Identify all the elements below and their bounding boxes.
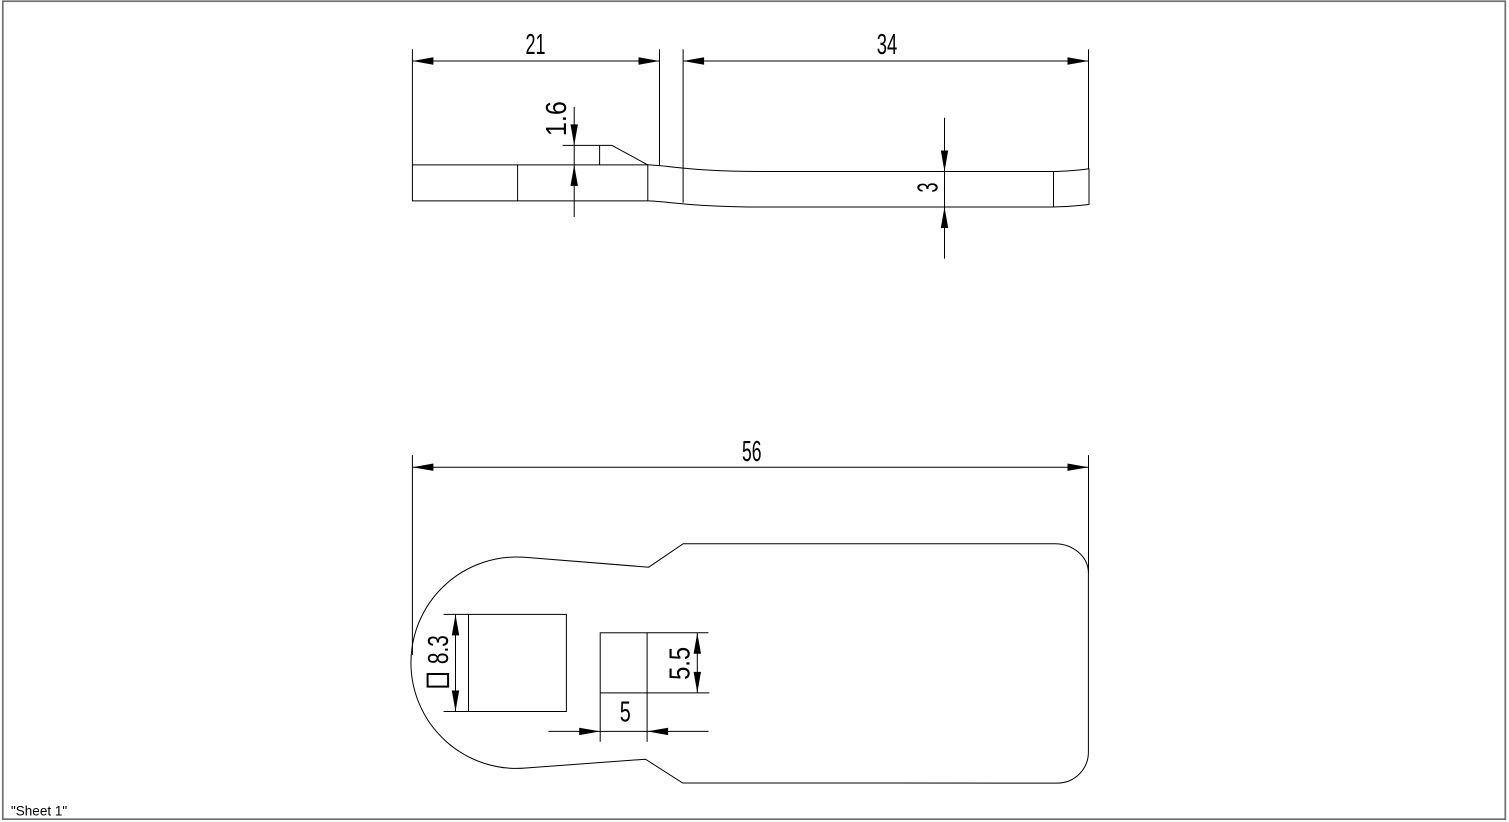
svg-text:5: 5 <box>620 696 631 728</box>
svg-text:3: 3 <box>913 183 945 193</box>
svg-text:"Sheet 1": "Sheet 1" <box>11 804 67 819</box>
svg-text:5.5: 5.5 <box>665 647 697 680</box>
svg-text:8.3: 8.3 <box>423 635 455 664</box>
svg-text:1.6: 1.6 <box>541 101 573 136</box>
svg-text:34: 34 <box>877 29 898 61</box>
svg-text:56: 56 <box>742 436 762 468</box>
svg-text:21: 21 <box>526 29 546 61</box>
